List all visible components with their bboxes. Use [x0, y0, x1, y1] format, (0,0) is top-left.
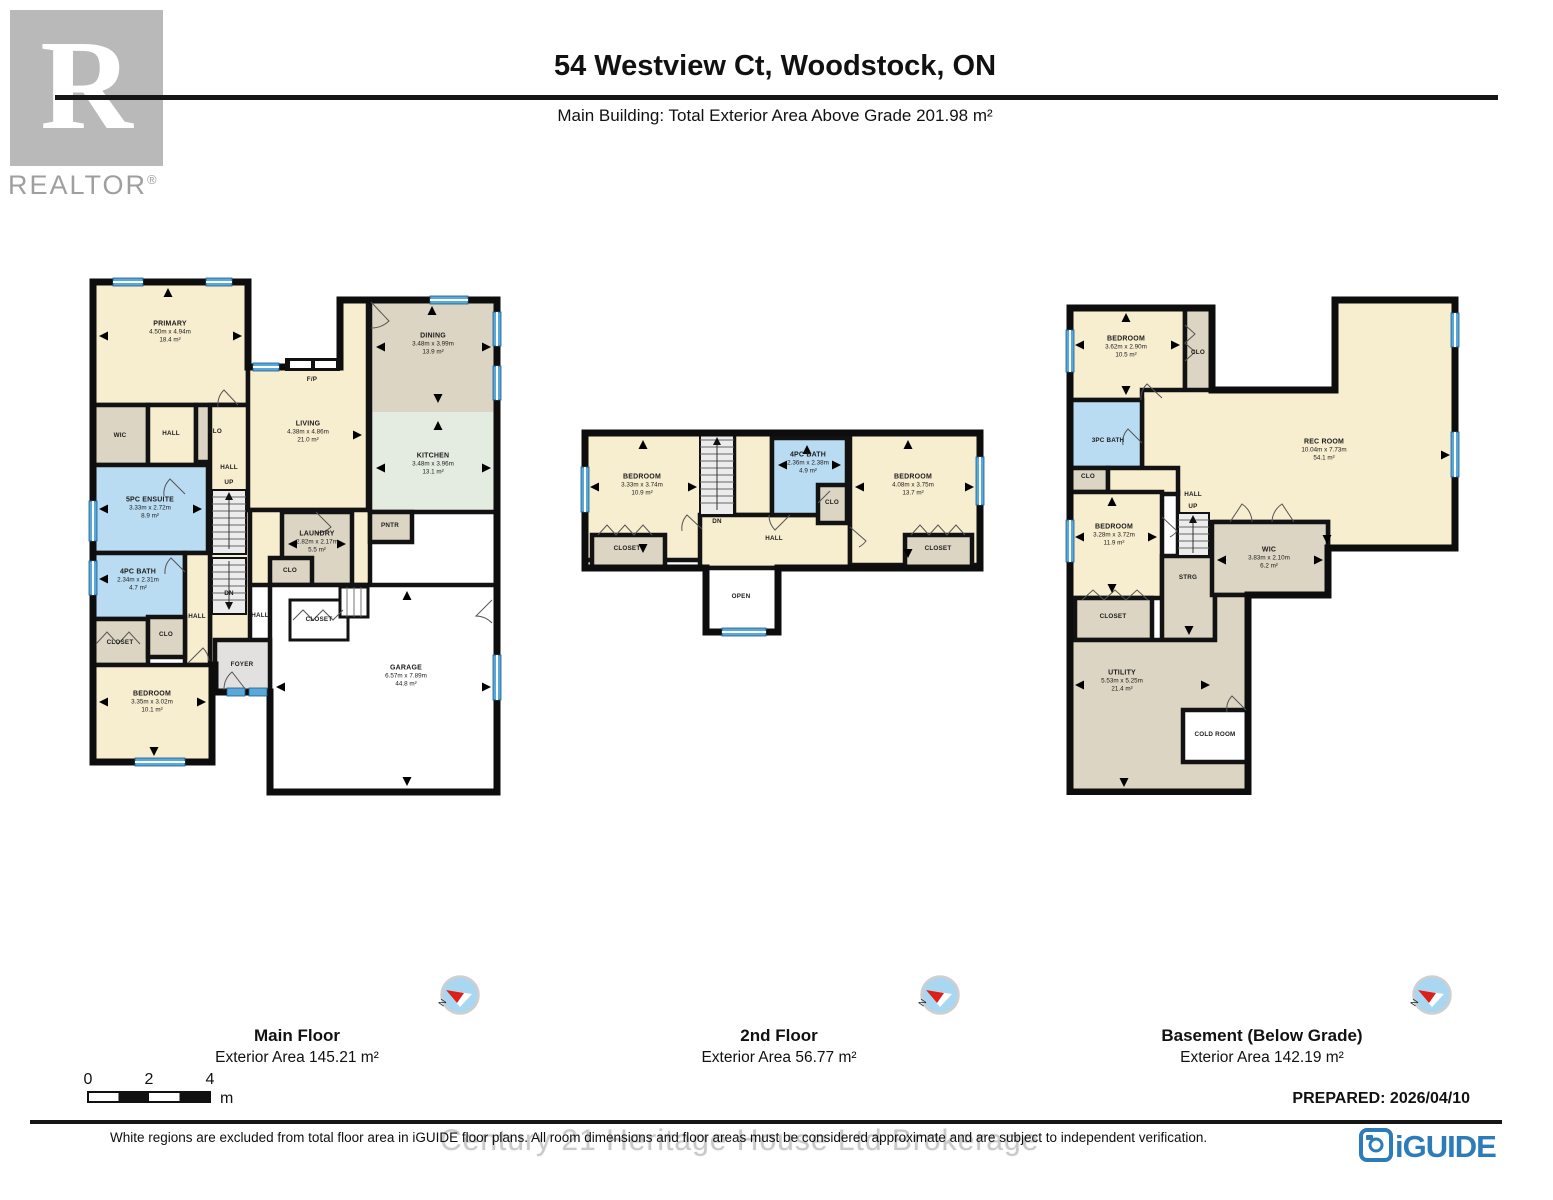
- stairs-up-label: UP: [224, 479, 233, 487]
- room-label-living: LIVING4.38m x 4.86m21.0 m²: [287, 419, 329, 444]
- room-name: WIC: [1248, 545, 1290, 554]
- room-label-open: OPEN: [732, 593, 751, 601]
- room-name: 4PC BATH: [117, 567, 159, 576]
- room-name: HALL: [220, 464, 238, 472]
- floor-title: Main Floor: [167, 1026, 427, 1046]
- room-name: CLO: [159, 631, 173, 639]
- room-label-up: UP: [1188, 503, 1197, 511]
- room-name: BEDROOM: [892, 472, 934, 481]
- room-label-hall-foyer: HALL: [251, 612, 269, 620]
- room-area: 11.9 m²: [1093, 540, 1135, 548]
- room-name: HALL: [162, 430, 180, 438]
- compass-icon: N: [916, 971, 964, 1019]
- room-name: CLOSET: [1100, 613, 1127, 621]
- room-label-pntr: PNTR: [381, 522, 399, 530]
- room-name: STRG: [1179, 574, 1197, 582]
- room-label-closet: CLOSET: [1100, 613, 1127, 621]
- room-label-clo: CLO: [825, 499, 839, 507]
- room-name: CLOSET: [614, 545, 641, 553]
- basement-stairs: [1178, 513, 1209, 556]
- room-name: CLOSET: [925, 545, 952, 553]
- floor-area: Exterior Area 56.77 m²: [649, 1049, 909, 1067]
- floor-title: Basement (Below Grade): [1132, 1026, 1392, 1046]
- room-dims: 3.48m x 3.99m: [412, 340, 454, 348]
- room-dims: 2.36m x 2.38m: [787, 459, 829, 467]
- footer-divider-line: [30, 1120, 1502, 1124]
- room-label-bedroom-mid: BEDROOM3.28m x 3.72m11.9 m²: [1093, 522, 1135, 547]
- room-label-closet-bed: CLOSET: [107, 639, 134, 647]
- room-name: LAUNDRY: [296, 529, 338, 538]
- second-floor-stairs: [700, 433, 734, 515]
- room-label-dn: DN: [712, 518, 722, 526]
- room-name: CLO: [1081, 473, 1095, 481]
- room-area: 4.7 m²: [117, 585, 159, 593]
- floor-area: Exterior Area 145.21 m²: [167, 1049, 427, 1067]
- room-label-hall-center: HALL: [220, 464, 238, 472]
- scale-unit: m: [220, 1090, 233, 1107]
- prepared-date: PREPARED: 2026/04/10: [1250, 1090, 1470, 1108]
- room-area: 5.5 m²: [296, 547, 338, 555]
- disclaimer-text: White regions are excluded from total fl…: [110, 1130, 1207, 1145]
- room-label-fp: F/P: [307, 376, 317, 384]
- registered-mark: ®: [147, 172, 159, 187]
- room-name: FOYER: [231, 661, 254, 669]
- realtor-wordmark-text: REALTOR: [8, 170, 147, 200]
- room-dims: 4.38m x 4.86m: [287, 428, 329, 436]
- room-name: BEDROOM: [621, 472, 663, 481]
- realtor-logo: R: [10, 10, 163, 166]
- room-area: 21.0 m²: [287, 437, 329, 445]
- room-area: 21.4 m²: [1101, 686, 1143, 694]
- fireplace-label: F/P: [307, 376, 317, 384]
- room-area: 4.9 m²: [787, 468, 829, 476]
- room-name: 3PC BATH: [1092, 437, 1125, 445]
- room-label-hall: HALL: [1184, 491, 1202, 499]
- main-floor-caption: Main Floor Exterior Area 145.21 m²: [167, 1026, 427, 1067]
- room-bath3: [1070, 400, 1142, 468]
- room-dims: 3.62m x 2.90m: [1105, 343, 1147, 351]
- room-area: 13.9 m²: [412, 349, 454, 357]
- room-label-closet-right: CLOSET: [925, 545, 952, 553]
- room-name: BEDROOM: [1105, 334, 1147, 343]
- room-name: HALL: [188, 613, 206, 621]
- room-dims: 4.08m x 3.75m: [892, 481, 934, 489]
- room-name: CLO: [208, 428, 222, 436]
- room-label-strg: STRG: [1179, 574, 1197, 582]
- compass-icon: N: [1408, 971, 1456, 1019]
- room-area: 18.4 m²: [149, 337, 191, 345]
- scale-bar: 0 2 4 m: [78, 1068, 258, 1116]
- scale-tick-0: 0: [84, 1071, 93, 1088]
- room-label-clo-mid: CLO: [159, 631, 173, 639]
- room-area: 13.7 m²: [892, 490, 934, 498]
- room-dims: 5.53m x 5.25m: [1101, 677, 1143, 685]
- room-label-primary: PRIMARY4.50m x 4.94m18.4 m²: [149, 319, 191, 344]
- room-dims: 3.33m x 3.74m: [621, 481, 663, 489]
- second-floor-caption: 2nd Floor Exterior Area 56.77 m²: [649, 1026, 909, 1067]
- room-name: HALL: [251, 612, 269, 620]
- stairs-dn-label: DN: [712, 518, 722, 526]
- floor-title: 2nd Floor: [649, 1026, 909, 1046]
- room-name: BEDROOM: [131, 689, 173, 698]
- room-name: 5PC ENSUITE: [126, 495, 174, 504]
- room-area: 54.1 m²: [1301, 455, 1346, 463]
- second-floor-plan: BEDROOM3.33m x 3.74m10.9 m² CLOSET DN HA…: [578, 425, 988, 640]
- main-floor-fireplace: [285, 358, 340, 371]
- room-dims: 3.33m x 2.72m: [126, 504, 174, 512]
- room-label-cold: COLD ROOM: [1195, 731, 1236, 739]
- room-dims: 10.04m x 7.73m: [1301, 446, 1346, 454]
- room-name: OPEN: [732, 593, 751, 601]
- room-label-dn: DN: [224, 590, 234, 598]
- scale-tick-4: 4: [206, 1071, 215, 1088]
- room-label-clo-upper: CLO: [208, 428, 222, 436]
- room-label-wic: WIC: [114, 432, 127, 440]
- room-name: HALL: [765, 535, 783, 543]
- room-label-bedroom: BEDROOM3.35m x 3.02m10.1 m²: [131, 689, 173, 714]
- room-area: 8.9 m²: [126, 513, 174, 521]
- room-area: 6.2 m²: [1248, 563, 1290, 571]
- room-label-bedroom-top: BEDROOM3.62m x 2.90m10.5 m²: [1105, 334, 1147, 359]
- room-label-closet-left: CLOSET: [614, 545, 641, 553]
- room-name: REC ROOM: [1301, 437, 1346, 446]
- room-label-clo-top: CLO: [1191, 349, 1205, 357]
- room-label-utility: UTILITY5.53m x 5.25m21.4 m²: [1101, 668, 1143, 693]
- floorplan-sheet: R REALTOR® 54 Westview Ct, Woodstock, ON…: [0, 0, 1553, 1200]
- room-name: CLO: [825, 499, 839, 507]
- room-name: CLO: [283, 567, 297, 575]
- room-living: [248, 300, 368, 510]
- room-dims: 4.50m x 4.94m: [149, 328, 191, 336]
- room-dims: 2.34m x 2.31m: [117, 576, 159, 584]
- room-dims: 3.83m x 2.10m: [1248, 554, 1290, 562]
- room-dims: 3.48m x 3.96m: [412, 460, 454, 468]
- room-name: CLOSET: [107, 639, 134, 647]
- room-name: 4PC BATH: [787, 450, 829, 459]
- room-name: HALL: [1184, 491, 1202, 499]
- room-label-clo-laundry: CLO: [283, 567, 297, 575]
- room-name: KITCHEN: [412, 451, 454, 460]
- room-name: CLOSET: [306, 616, 333, 624]
- realtor-wordmark: REALTOR®: [8, 170, 198, 201]
- compass-icon: N: [436, 971, 484, 1019]
- basement-plan: BEDROOM3.62m x 2.90m10.5 m² CLO 3PC BATH…: [1062, 295, 1462, 795]
- room-name: PRIMARY: [149, 319, 191, 328]
- basement-caption: Basement (Below Grade) Exterior Area 142…: [1132, 1026, 1392, 1067]
- room-label-up: UP: [224, 479, 233, 487]
- room-name: CLO: [1191, 349, 1205, 357]
- room-name: LIVING: [287, 419, 329, 428]
- room-label-closet-garage: CLOSET: [306, 616, 333, 624]
- room-dims: 6.57m x 7.89m: [385, 672, 427, 680]
- main-floor-plan: PRIMARY4.50m x 4.94m18.4 m² WIC HALL CLO…: [88, 272, 508, 802]
- room-area: 10.5 m²: [1105, 352, 1147, 360]
- iguide-camera-icon: [1361, 1130, 1391, 1160]
- room-area: 44.8 m²: [385, 681, 427, 689]
- iguide-wordmark: iGUIDE: [1395, 1129, 1496, 1164]
- room-dims: 3.35m x 3.02m: [131, 698, 173, 706]
- room-dims: 2.82m x 2.17m: [296, 538, 338, 546]
- header-divider-line: [55, 95, 1498, 100]
- iguide-logo: iGUIDE: [1358, 1126, 1503, 1166]
- room-label-hall: HALL: [765, 535, 783, 543]
- room-hall-top: [734, 433, 772, 515]
- room-label-bath3: 3PC BATH: [1092, 437, 1125, 445]
- room-area: 10.1 m²: [131, 707, 173, 715]
- room-label-hall-bed: HALL: [188, 613, 206, 621]
- scale-tick-2: 2: [145, 1071, 154, 1088]
- room-name: GARAGE: [385, 663, 427, 672]
- room-dims: 3.28m x 3.72m: [1093, 531, 1135, 539]
- room-label-bath: 4PC BATH2.36m x 2.38m4.9 m²: [787, 450, 829, 475]
- room-label-clo-small: CLO: [1081, 473, 1095, 481]
- room-label-foyer: FOYER: [231, 661, 254, 669]
- room-label-bedroom-right: BEDROOM4.08m x 3.75m13.7 m²: [892, 472, 934, 497]
- room-label-ensuite: 5PC ENSUITE3.33m x 2.72m8.9 m²: [126, 495, 174, 520]
- floor-area: Exterior Area 142.19 m²: [1132, 1049, 1392, 1067]
- room-label-garage: GARAGE6.57m x 7.89m44.8 m²: [385, 663, 427, 688]
- room-name: COLD ROOM: [1195, 731, 1236, 739]
- realtor-logo-letter: R: [10, 10, 163, 160]
- room-label-bedroom-left: BEDROOM3.33m x 3.74m10.9 m²: [621, 472, 663, 497]
- room-name: BEDROOM: [1093, 522, 1135, 531]
- room-area: 10.9 m²: [621, 490, 663, 498]
- stairs-dn-label: DN: [224, 590, 234, 598]
- room-label-kitchen: KITCHEN3.48m x 3.96m13.1 m²: [412, 451, 454, 476]
- room-label-rec: REC ROOM10.04m x 7.73m54.1 m²: [1301, 437, 1346, 462]
- room-label-bath: 4PC BATH2.34m x 2.31m4.7 m²: [117, 567, 159, 592]
- room-area: 13.1 m²: [412, 469, 454, 477]
- room-label-laundry: LAUNDRY2.82m x 2.17m5.5 m²: [296, 529, 338, 554]
- room-name: PNTR: [381, 522, 399, 530]
- room-hall-bed: [185, 553, 210, 665]
- room-name: WIC: [114, 432, 127, 440]
- room-name: UTILITY: [1101, 668, 1143, 677]
- page-subtitle: Main Building: Total Exterior Area Above…: [350, 106, 1200, 126]
- room-name: DINING: [412, 331, 454, 340]
- room-label-dining: DINING3.48m x 3.99m13.9 m²: [412, 331, 454, 356]
- page-title: 54 Westview Ct, Woodstock, ON: [350, 50, 1200, 83]
- room-label-hall-upper: HALL: [162, 430, 180, 438]
- room-label-wic: WIC3.83m x 2.10m6.2 m²: [1248, 545, 1290, 570]
- second-floor-svg: [578, 425, 988, 640]
- stairs-up-label: UP: [1188, 503, 1197, 511]
